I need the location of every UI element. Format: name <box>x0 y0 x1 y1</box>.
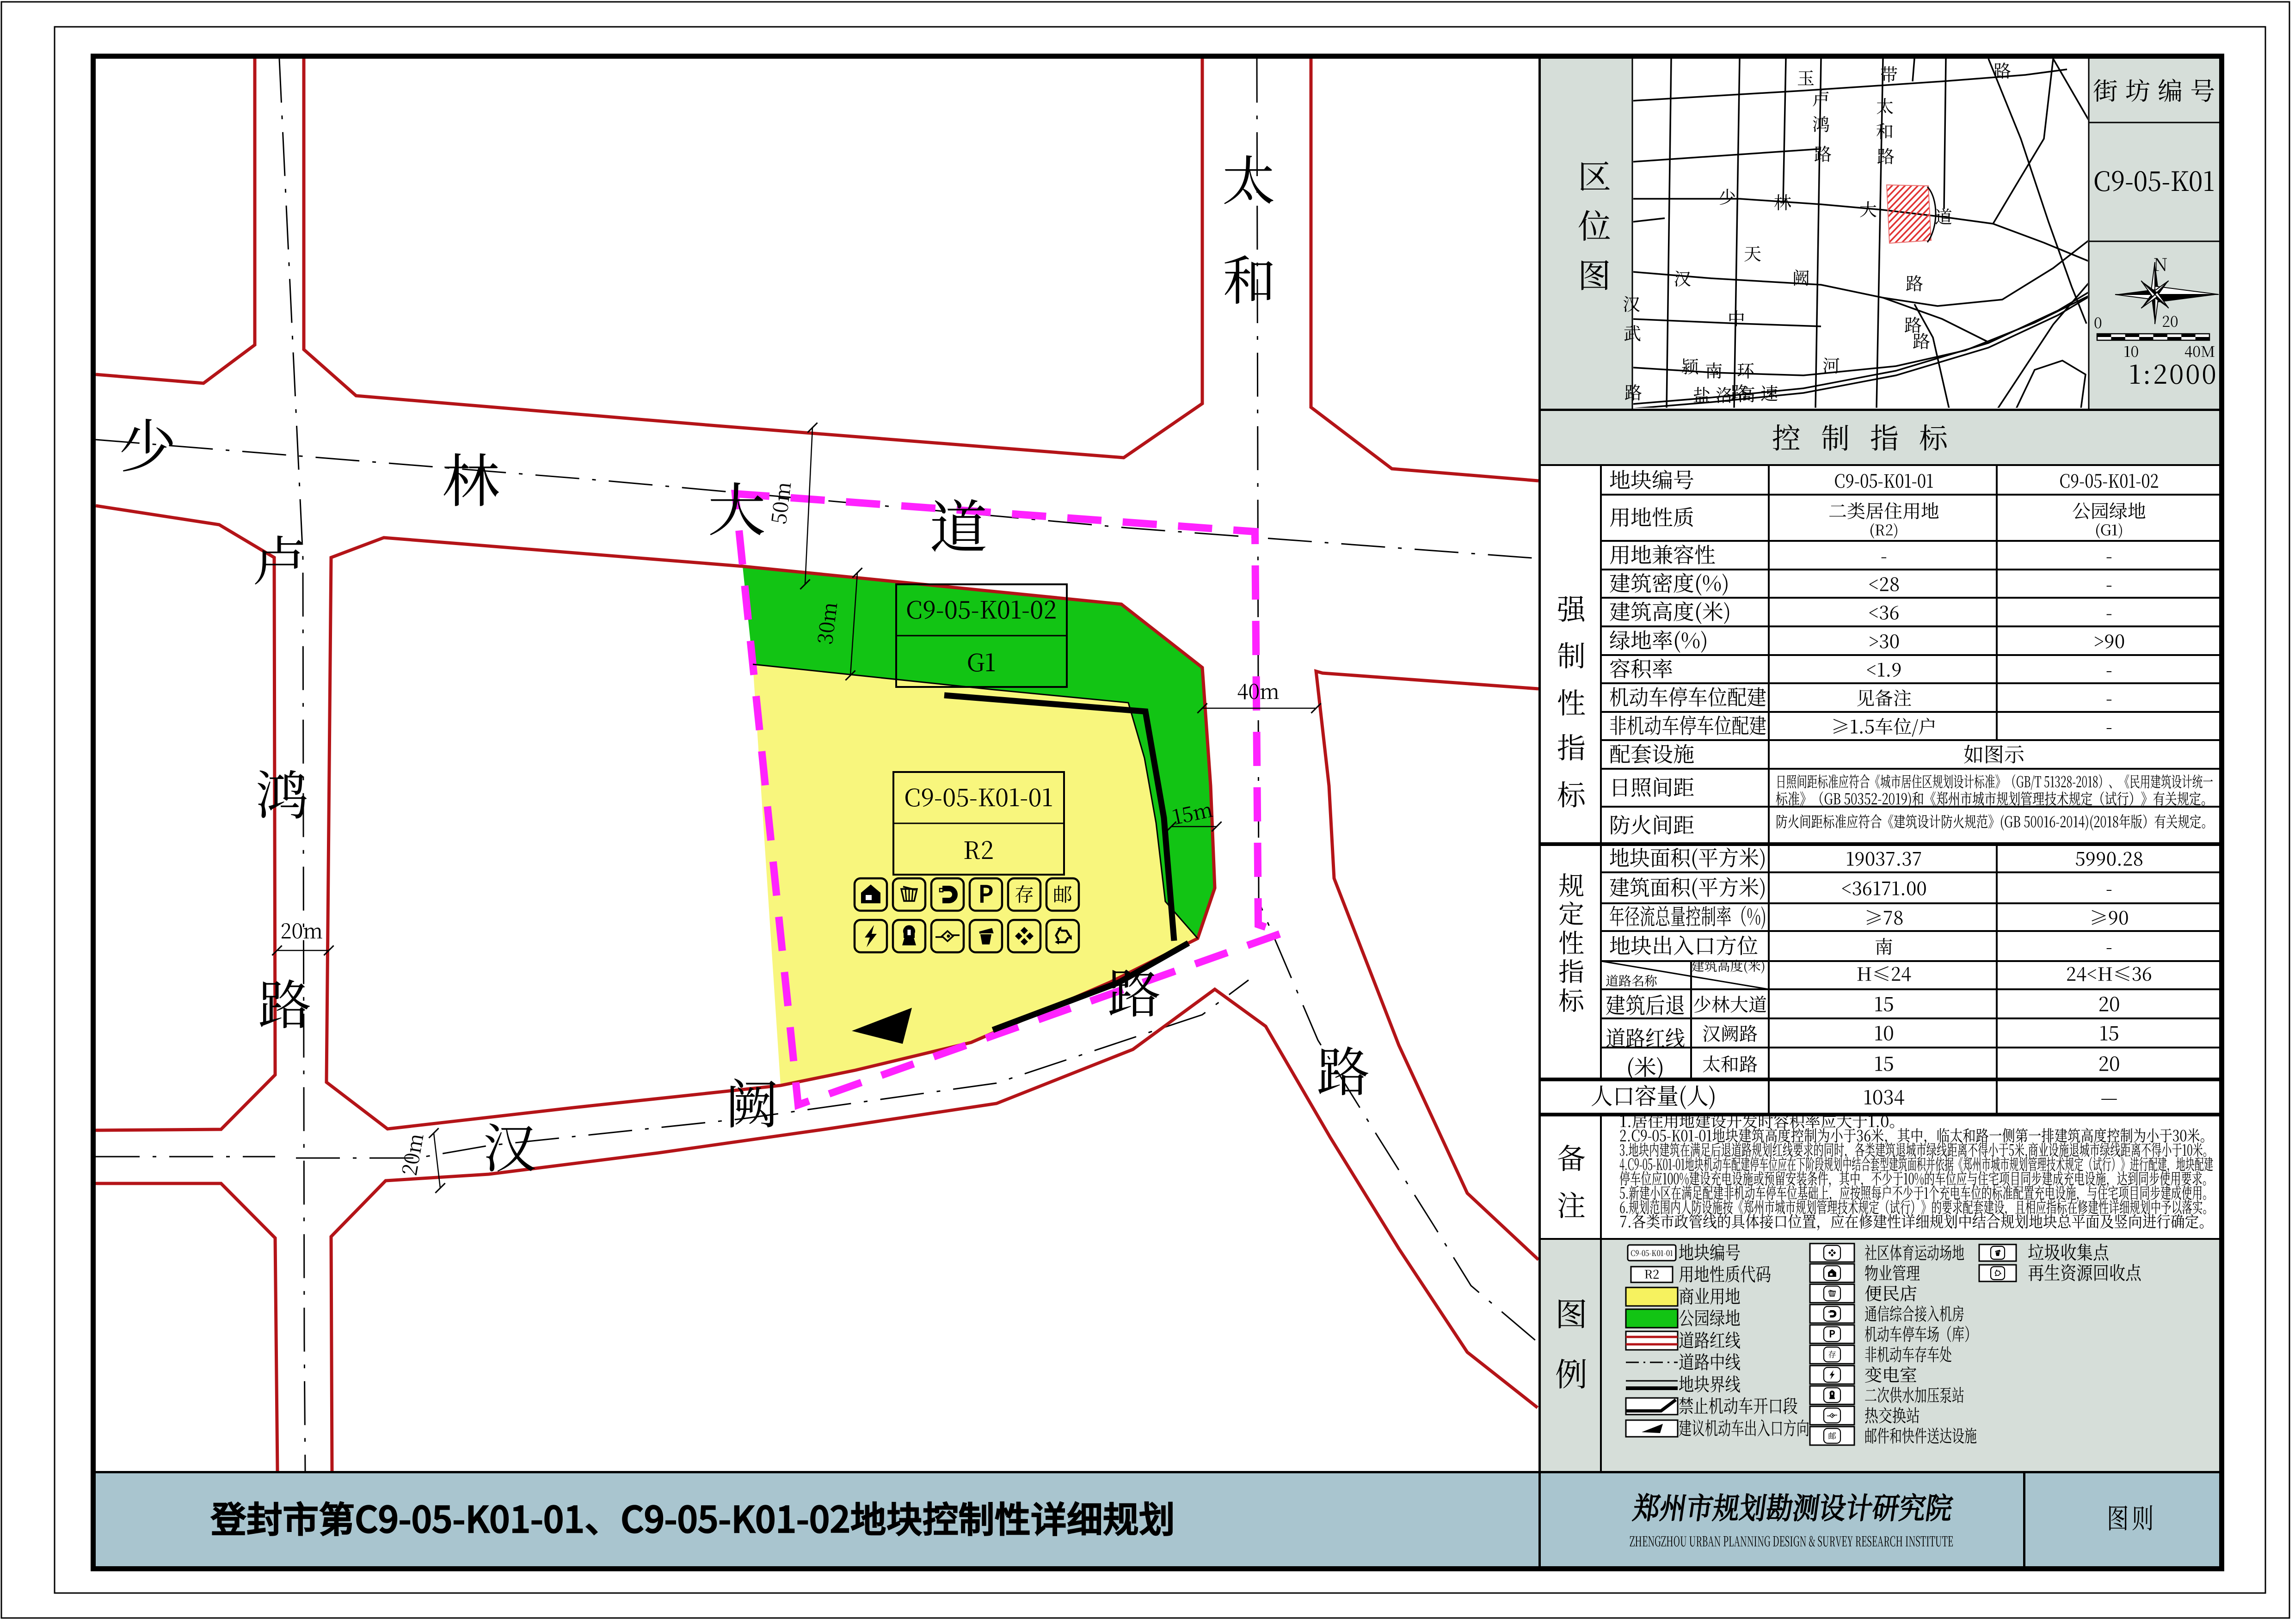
svg-text:路: 路 <box>1994 57 2011 82</box>
svg-text:用地性质: 用地性质 <box>1609 501 1694 532</box>
svg-text:R2: R2 <box>963 831 994 866</box>
svg-text:汉: 汉 <box>1674 265 1691 290</box>
svg-text:道路红线: 道路红线 <box>1606 1021 1685 1053</box>
svg-text:40m: 40m <box>1237 675 1280 705</box>
svg-text:南: 南 <box>1705 357 1723 382</box>
svg-text:-: - <box>2106 684 2112 711</box>
svg-text:位: 位 <box>1578 200 1611 248</box>
svg-text:郑州市规划勘测设计研究院: 郑州市规划勘测设计研究院 <box>1630 1485 1956 1527</box>
svg-text:-: - <box>2106 933 2112 959</box>
svg-text:街坊编号: 街坊编号 <box>2093 72 2222 107</box>
svg-text:路: 路 <box>1814 140 1832 165</box>
svg-text:容积率: 容积率 <box>1609 653 1673 683</box>
svg-text:<36: <36 <box>1868 599 1900 625</box>
svg-text:卢: 卢 <box>1812 85 1830 110</box>
svg-text:少: 少 <box>1718 183 1736 208</box>
svg-text:标: 标 <box>1558 981 1584 1018</box>
svg-text:道: 道 <box>1935 203 1952 228</box>
svg-text:标准》（GB 50352-2019)和《郑州市城市规划管理技: 标准》（GB 50352-2019)和《郑州市城市规划管理技术规定（试行）》有关… <box>1776 787 2213 809</box>
svg-text:P: P <box>1829 1327 1835 1341</box>
svg-text:(米): (米) <box>1626 1050 1665 1082</box>
svg-text:大: 大 <box>708 464 766 547</box>
svg-text:P: P <box>978 876 993 909</box>
svg-text:(R2): (R2) <box>1869 519 1899 540</box>
svg-text:C9-05-K01: C9-05-K01 <box>2093 160 2215 199</box>
svg-text:性: 性 <box>1557 680 1586 722</box>
svg-text:(G1): (G1) <box>2095 519 2123 540</box>
svg-text:指: 指 <box>1557 725 1586 766</box>
svg-text:-: - <box>2106 599 2112 625</box>
svg-text:速: 速 <box>1760 380 1778 405</box>
svg-text:20: 20 <box>2162 310 2178 331</box>
svg-text:-: - <box>1881 542 1887 568</box>
svg-text:环: 环 <box>1737 357 1754 382</box>
svg-text:用地兼容性: 用地兼容性 <box>1609 539 1716 569</box>
svg-text:机动车停车位配建: 机动车停车位配建 <box>1609 681 1766 711</box>
svg-text:人口容量(人): 人口容量(人) <box>1591 1078 1717 1111</box>
svg-text:配套设施: 配套设施 <box>1609 738 1694 768</box>
svg-text:邮: 邮 <box>1053 880 1072 907</box>
svg-text:≥78: ≥78 <box>1864 904 1903 930</box>
svg-text:0: 0 <box>2094 312 2102 333</box>
svg-text:24<H≤36: 24<H≤36 <box>2066 960 2152 987</box>
svg-text:鸿: 鸿 <box>1812 110 1830 136</box>
svg-text:路: 路 <box>1877 142 1895 168</box>
svg-text:存: 存 <box>1828 1348 1836 1360</box>
svg-text:如图示: 如图示 <box>1963 738 2024 768</box>
svg-text:-: - <box>2106 542 2112 568</box>
svg-text:1034: 1034 <box>1863 1083 1905 1110</box>
svg-text:50m: 50m <box>763 480 797 526</box>
svg-text:路: 路 <box>1624 379 1642 404</box>
svg-text:20: 20 <box>2098 1049 2120 1077</box>
svg-text:年径流总量控制率（%): 年径流总量控制率（%) <box>1609 899 1766 931</box>
svg-text:带: 带 <box>1880 61 1898 86</box>
svg-text:5990.28: 5990.28 <box>2075 845 2143 871</box>
svg-text:15: 15 <box>1874 1049 1894 1077</box>
svg-text:林: 林 <box>1774 189 1791 214</box>
svg-text:防火间距: 防火间距 <box>1609 809 1694 840</box>
svg-text:路: 路 <box>1906 270 1923 295</box>
svg-text:30m: 30m <box>809 600 843 646</box>
svg-text:天: 天 <box>1744 240 1761 265</box>
svg-text:太: 太 <box>1222 139 1275 215</box>
svg-text:高: 高 <box>1738 380 1755 406</box>
svg-text:存: 存 <box>1015 880 1034 907</box>
svg-text:20: 20 <box>2098 990 2120 1017</box>
svg-text:例: 例 <box>1555 1349 1587 1396</box>
svg-text:道: 道 <box>930 481 988 564</box>
svg-text:-: - <box>2106 875 2112 901</box>
svg-text:林: 林 <box>442 435 500 518</box>
svg-text:C9-05-K01-02: C9-05-K01-02 <box>906 591 1057 625</box>
svg-text:7.各类市政管线的具体接口位置，应在修建性详细规划中结合规划: 7.各类市政管线的具体接口位置，应在修建性详细规划中结合规划地块总平面及竖向进行… <box>1619 1209 2213 1232</box>
svg-text:阙: 阙 <box>1792 264 1810 289</box>
svg-text:N: N <box>2153 251 2167 276</box>
svg-text:非机动车停车位配建: 非机动车停车位配建 <box>1609 710 1766 740</box>
svg-text:≥90: ≥90 <box>2090 904 2129 930</box>
svg-text:邮件和快件送达设施: 邮件和快件送达设施 <box>1864 1422 1977 1447</box>
svg-text:>90: >90 <box>2093 627 2125 654</box>
svg-text:道路名称: 道路名称 <box>1606 971 1657 990</box>
svg-text:地块编号: 地块编号 <box>1609 464 1694 494</box>
svg-text:H≤24: H≤24 <box>1857 960 1912 987</box>
svg-text:1:2000: 1:2000 <box>2129 355 2218 392</box>
svg-text:ZHENGZHOU URBAN PLANNING DESIG: ZHENGZHOU URBAN PLANNING DESIGN & SURVEY… <box>1630 1530 1953 1550</box>
svg-text:路: 路 <box>1108 951 1161 1028</box>
svg-text:路: 路 <box>1904 311 1922 337</box>
svg-text:地块面积(平方米): 地块面积(平方米) <box>1609 842 1766 872</box>
svg-text:-: - <box>2106 570 2112 597</box>
svg-text:C9-05-K01-01: C9-05-K01-01 <box>904 778 1053 813</box>
svg-text:建议机动车出入口方向: 建议机动车出入口方向 <box>1679 1414 1809 1440</box>
svg-text:邮: 邮 <box>1828 1430 1836 1441</box>
svg-text:绿地率(%): 绿地率(%) <box>1609 624 1708 655</box>
svg-text:C9-05-K01-01: C9-05-K01-01 <box>1834 467 1934 493</box>
svg-text:阙: 阙 <box>725 1062 778 1139</box>
svg-text:和: 和 <box>1223 239 1276 315</box>
svg-text:<1.9: <1.9 <box>1866 656 1902 682</box>
svg-text:少: 少 <box>119 400 177 484</box>
svg-text:R2: R2 <box>1644 1265 1659 1282</box>
svg-text:颍: 颍 <box>1681 353 1699 378</box>
svg-text:日照间距: 日照间距 <box>1609 771 1694 802</box>
svg-text:大: 大 <box>1859 196 1877 221</box>
svg-text:卢: 卢 <box>253 519 306 595</box>
svg-text:-: - <box>2106 713 2112 739</box>
svg-text:建筑高度(米): 建筑高度(米) <box>1692 956 1766 975</box>
svg-text:≥1.5车位/户: ≥1.5车位/户 <box>1831 713 1937 739</box>
svg-text:登封市第C9-05-K01-01、C9-05-K01-02地: 登封市第C9-05-K01-01、C9-05-K01-02地块控制性详细规划 <box>210 1491 1175 1543</box>
svg-text:汉阙路: 汉阙路 <box>1702 1020 1758 1046</box>
svg-text:图则: 图则 <box>2107 1497 2157 1537</box>
svg-text:建筑高度(米): 建筑高度(米) <box>1609 595 1731 626</box>
svg-text:15: 15 <box>1874 990 1894 1017</box>
svg-text:洛: 洛 <box>1716 381 1733 407</box>
svg-text:太和路: 太和路 <box>1702 1050 1758 1077</box>
svg-text:区: 区 <box>1578 150 1611 198</box>
svg-text:强: 强 <box>1557 587 1586 628</box>
svg-text:南: 南 <box>1875 933 1893 959</box>
svg-text:再生资源回收点: 再生资源回收点 <box>2028 1259 2141 1285</box>
svg-text:<36171.00: <36171.00 <box>1841 875 1926 901</box>
svg-text:建筑面积(平方米): 建筑面积(平方米) <box>1609 871 1766 902</box>
svg-text:汉: 汉 <box>483 1106 536 1183</box>
svg-text:19037.37: 19037.37 <box>1846 845 1922 871</box>
svg-text:盐: 盐 <box>1693 381 1710 407</box>
svg-text:C9-05-K01-02: C9-05-K01-02 <box>2060 467 2159 493</box>
svg-text:20m: 20m <box>280 915 323 944</box>
svg-text:—: — <box>2100 1083 2117 1110</box>
svg-text:武: 武 <box>1624 319 1641 345</box>
svg-text:备: 备 <box>1557 1136 1586 1177</box>
svg-text:15: 15 <box>2099 1019 2119 1047</box>
svg-text:标: 标 <box>1557 772 1586 814</box>
svg-text:少林大道: 少林大道 <box>1693 991 1767 1017</box>
svg-text:鸿: 鸿 <box>255 754 308 830</box>
svg-text:防火间距标准应符合《建筑设计防火规范》(GB 50016-2: 防火间距标准应符合《建筑设计防火规范》(GB 50016-2014)(2018年… <box>1776 810 2213 832</box>
svg-text:注: 注 <box>1557 1183 1586 1224</box>
svg-text:-: - <box>2106 656 2112 682</box>
svg-text:10: 10 <box>1874 1019 1894 1047</box>
svg-text:中: 中 <box>1728 305 1745 330</box>
svg-text:太: 太 <box>1876 92 1894 118</box>
svg-text:路: 路 <box>258 963 311 1039</box>
svg-text:见备注: 见备注 <box>1856 684 1912 711</box>
svg-text:河: 河 <box>1822 352 1840 377</box>
svg-text:控制指标: 控制指标 <box>1772 416 1968 457</box>
svg-text:建筑后退: 建筑后退 <box>1606 988 1685 1020</box>
svg-text:G1: G1 <box>966 643 996 678</box>
svg-text:汉: 汉 <box>1623 290 1640 316</box>
svg-text:图: 图 <box>1578 249 1611 297</box>
svg-text:C9-05-K01-01: C9-05-K01-01 <box>1630 1247 1673 1258</box>
svg-text:制: 制 <box>1557 633 1586 674</box>
svg-text:<28: <28 <box>1868 570 1900 597</box>
svg-text:和: 和 <box>1876 117 1894 143</box>
svg-text:图: 图 <box>1555 1289 1587 1336</box>
svg-text:建筑密度(%): 建筑密度(%) <box>1609 567 1729 598</box>
svg-text:地块出入口方位: 地块出入口方位 <box>1609 930 1758 960</box>
svg-text:路: 路 <box>1317 1030 1370 1106</box>
svg-text:>30: >30 <box>1868 627 1900 654</box>
